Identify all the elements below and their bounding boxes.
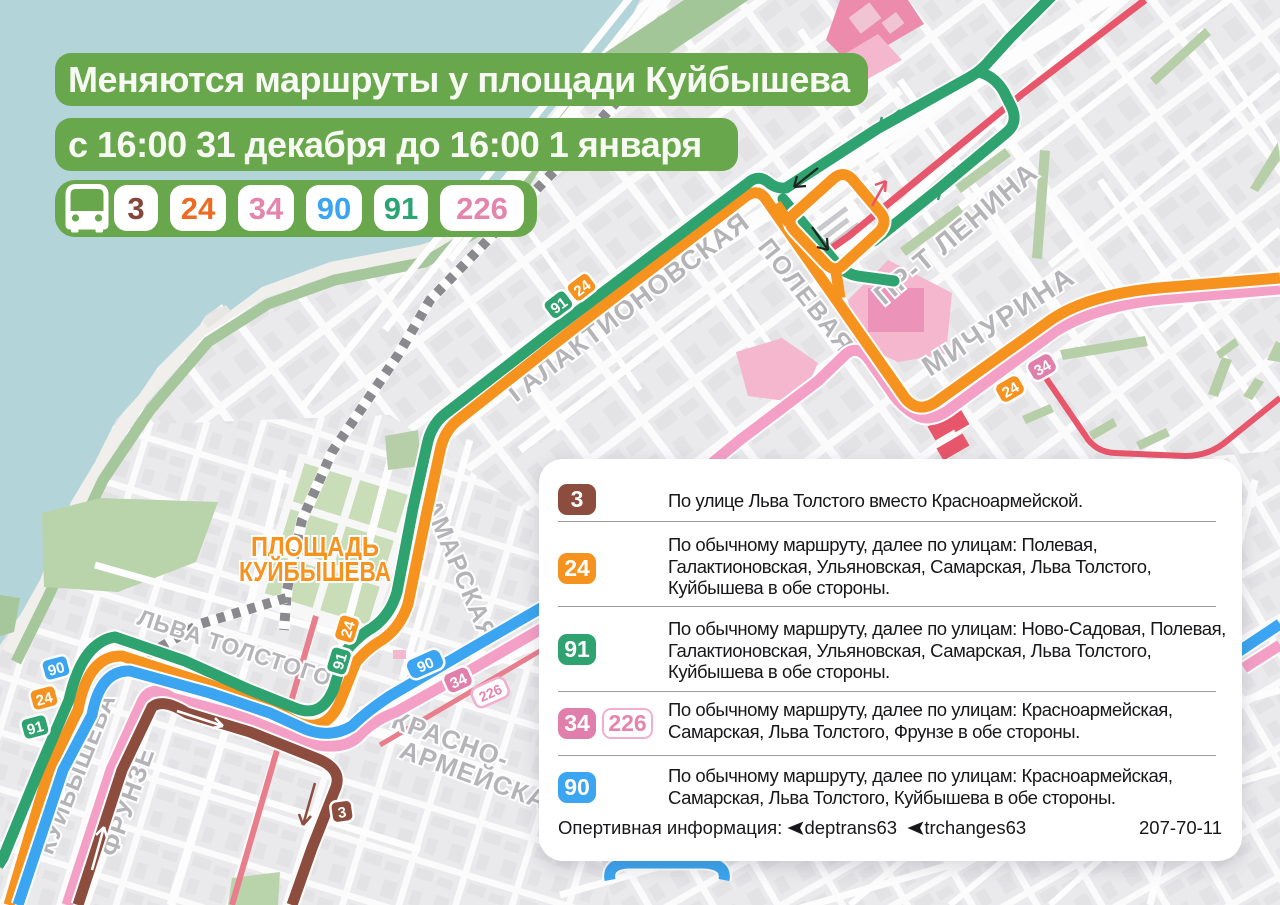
svg-text:КУЙБЫШЕВА: КУЙБЫШЕВА — [239, 555, 391, 587]
